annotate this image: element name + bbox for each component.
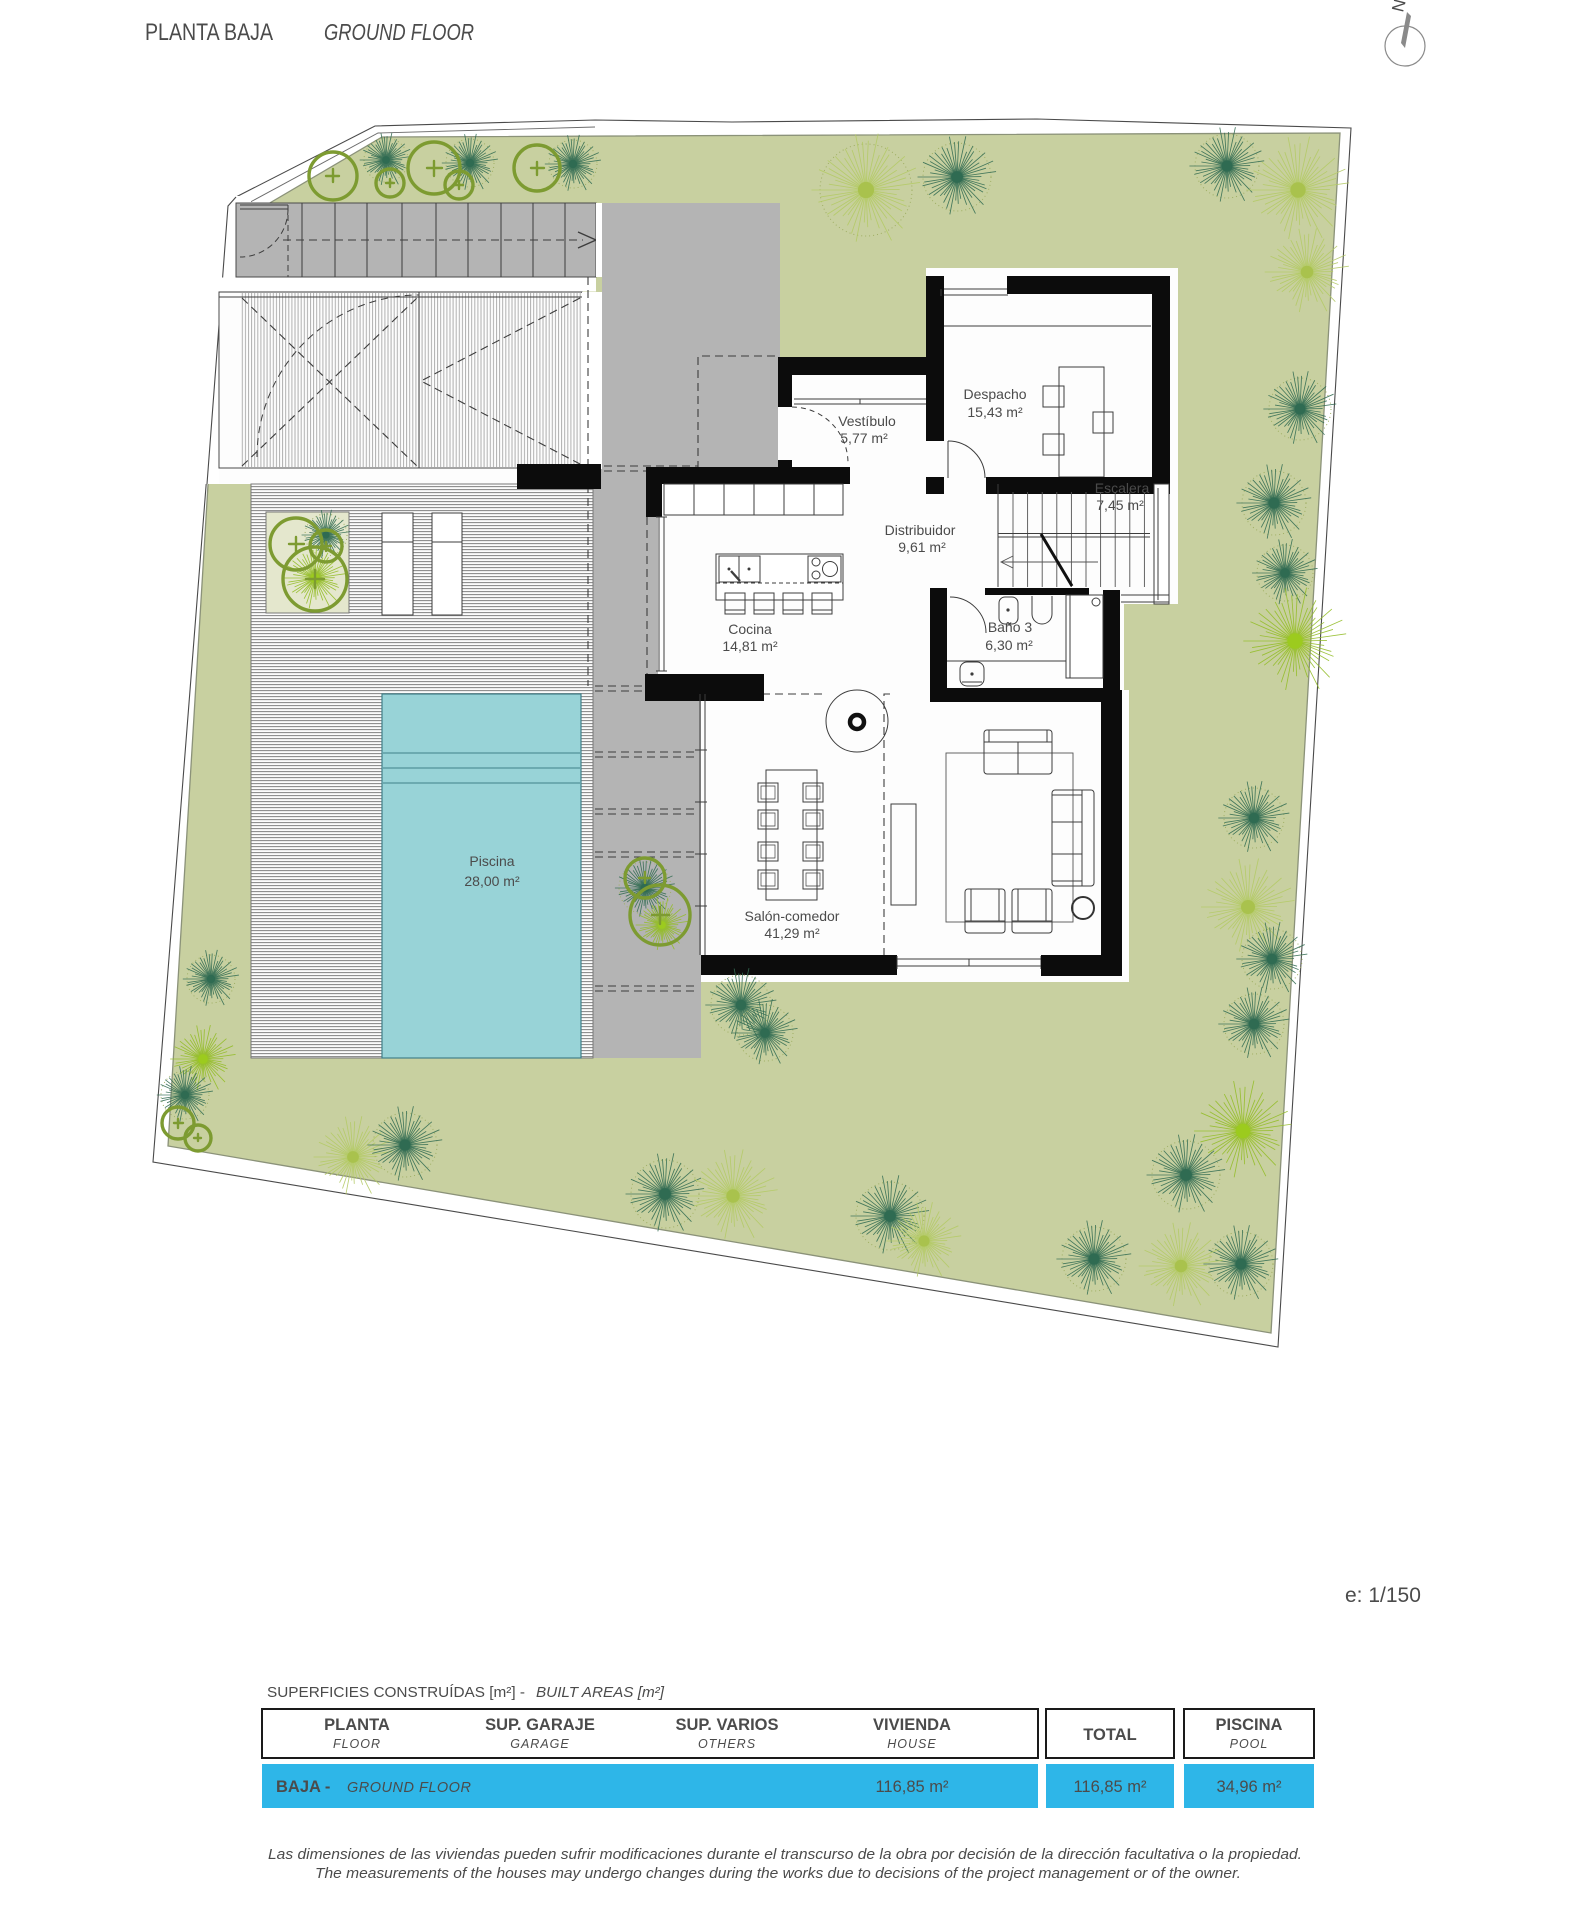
svg-text:SUP. GARAJE: SUP. GARAJE: [485, 1716, 595, 1734]
svg-text:VIVIENDA: VIVIENDA: [873, 1716, 951, 1734]
svg-text:9,61 m²: 9,61 m²: [898, 539, 946, 555]
svg-text:HOUSE: HOUSE: [887, 1737, 936, 1751]
svg-text:N: N: [1388, 0, 1409, 14]
svg-text:BAJA -: BAJA -: [276, 1778, 330, 1796]
svg-text:FLOOR: FLOOR: [333, 1737, 381, 1751]
svg-text:116,85 m²: 116,85 m²: [1073, 1778, 1147, 1796]
svg-text:Cocina: Cocina: [728, 621, 772, 637]
svg-text:Piscina: Piscina: [469, 853, 514, 869]
svg-text:116,85 m²: 116,85 m²: [875, 1778, 949, 1796]
svg-text:OTHERS: OTHERS: [698, 1737, 756, 1751]
svg-text:PISCINA: PISCINA: [1216, 1716, 1283, 1734]
svg-text:15,43 m²: 15,43 m²: [967, 404, 1023, 420]
svg-text:BUILT AREAS [m²]: BUILT AREAS [m²]: [536, 1685, 665, 1701]
svg-text:Escalera: Escalera: [1095, 480, 1150, 496]
svg-text:The measurements of the houses: The measurements of the houses may under…: [315, 1866, 1241, 1882]
svg-text:41,29 m²: 41,29 m²: [764, 925, 820, 941]
svg-text:Salón-comedor: Salón-comedor: [745, 908, 840, 924]
svg-text:6,30 m²: 6,30 m²: [985, 637, 1033, 653]
svg-text:TOTAL: TOTAL: [1083, 1726, 1136, 1744]
svg-text:Vestíbulo: Vestíbulo: [838, 413, 896, 429]
svg-text:GROUND FLOOR: GROUND FLOOR: [324, 19, 474, 45]
svg-text:PLANTA: PLANTA: [324, 1716, 390, 1734]
svg-text:Baño 3: Baño 3: [988, 619, 1033, 635]
svg-text:POOL: POOL: [1230, 1737, 1269, 1751]
svg-text:28,00 m²: 28,00 m²: [464, 873, 520, 889]
svg-text:34,96 m²: 34,96 m²: [1216, 1778, 1282, 1796]
svg-text:PLANTA BAJA: PLANTA BAJA: [145, 19, 273, 46]
svg-text:14,81 m²: 14,81 m²: [722, 638, 778, 654]
svg-text:GROUND FLOOR: GROUND FLOOR: [347, 1780, 471, 1796]
svg-text:7,45 m²: 7,45 m²: [1096, 497, 1144, 513]
svg-text:Despacho: Despacho: [963, 386, 1026, 402]
svg-text:Distribuidor: Distribuidor: [885, 522, 956, 538]
svg-text:SUPERFICIES CONSTRUÍDAS [m²] -: SUPERFICIES CONSTRUÍDAS [m²] -: [267, 1684, 525, 1701]
svg-text:e: 1/150: e: 1/150: [1345, 1584, 1421, 1607]
svg-text:Las dimensiones de las viviend: Las dimensiones de las viviendas pueden …: [268, 1846, 1302, 1863]
svg-text:SUP. VARIOS: SUP. VARIOS: [675, 1716, 778, 1734]
svg-text:GARAGE: GARAGE: [510, 1737, 570, 1751]
svg-text:5,77 m²: 5,77 m²: [840, 430, 888, 446]
